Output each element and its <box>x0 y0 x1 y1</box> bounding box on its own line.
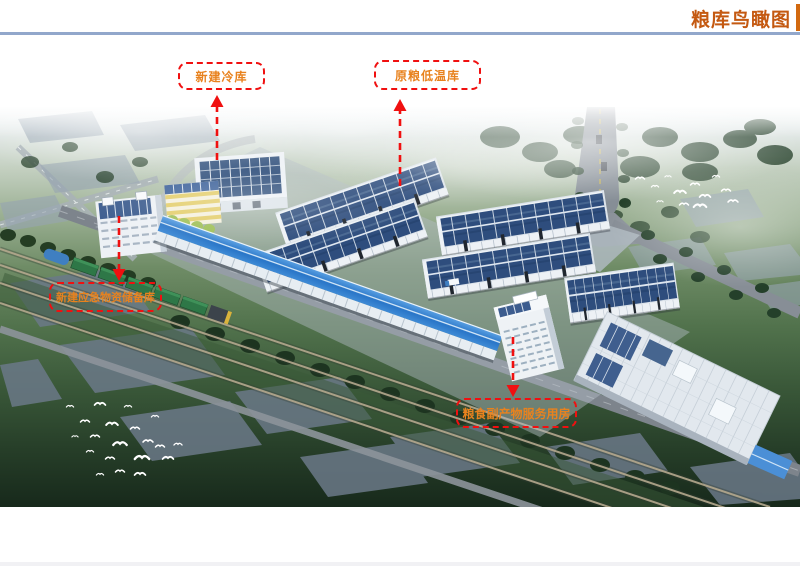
annotation-label-raw-grain-warehouse: 原粮低温库 <box>374 60 481 90</box>
annotation-label-emergency-reserve: 新建应急物资储备库 <box>49 282 162 312</box>
annotation-label-byproduct-service: 粮食副产物服务用房 <box>456 398 577 428</box>
slide: 粮库鸟瞰图 <box>0 0 800 566</box>
annotation-label-cold-storage: 新建冷库 <box>178 62 265 90</box>
page-title: 粮库鸟瞰图 <box>691 5 791 32</box>
slide-footer-line <box>0 562 800 566</box>
header-divider-line <box>0 32 800 35</box>
title-edge-bar <box>796 4 800 31</box>
